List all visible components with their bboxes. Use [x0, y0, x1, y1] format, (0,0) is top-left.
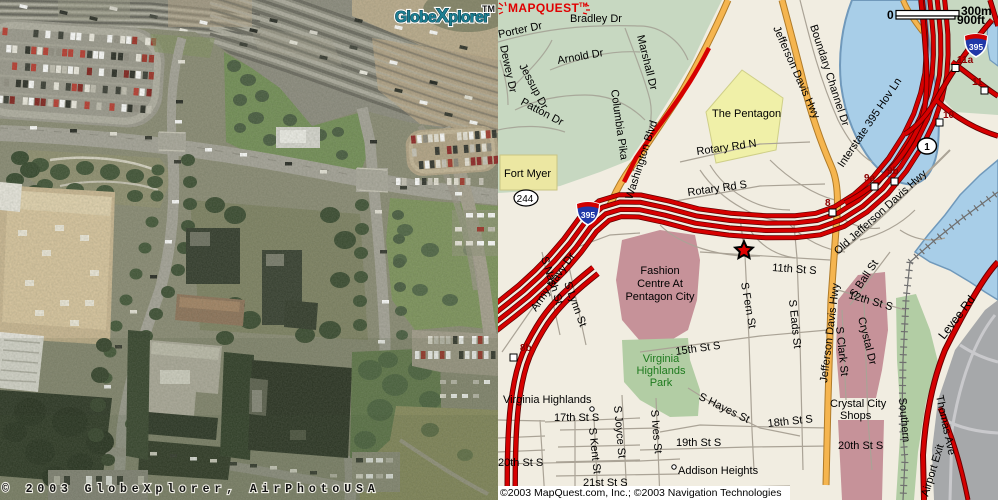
- svg-text:Fashion: Fashion: [640, 265, 679, 277]
- svg-text:MAPQUEST: MAPQUEST: [508, 1, 579, 15]
- svg-text:395: 395: [581, 210, 595, 220]
- svg-text:Crystal City: Crystal City: [830, 398, 887, 410]
- svg-text:Pentagon City: Pentagon City: [625, 291, 695, 303]
- svg-text:The Pentagon: The Pentagon: [712, 108, 781, 120]
- svg-text:Park: Park: [650, 377, 673, 389]
- svg-text:8b: 8b: [520, 343, 532, 354]
- svg-text:19th St S: 19th St S: [676, 437, 721, 449]
- svg-text:244: 244: [517, 194, 534, 205]
- svg-text:8: 8: [825, 198, 831, 209]
- svg-text:Highlands: Highlands: [637, 365, 686, 377]
- svg-text:© 2003 GlobeXplorer, AirPhotoU: © 2003 GlobeXplorer, AirPhotoUSA: [2, 483, 380, 496]
- svg-text:900ft: 900ft: [957, 13, 985, 27]
- svg-text:11: 11: [972, 77, 983, 88]
- svg-text:0: 0: [887, 8, 894, 22]
- svg-text:Fort Myer: Fort Myer: [504, 168, 551, 180]
- svg-text:GlobeXplorer: GlobeXplorer: [395, 5, 489, 27]
- svg-text:TM: TM: [482, 4, 495, 14]
- svg-text:10: 10: [943, 110, 955, 121]
- svg-text:Addison Heights: Addison Heights: [678, 465, 759, 477]
- svg-text:Shops: Shops: [840, 410, 872, 422]
- svg-text:9b: 9b: [887, 166, 899, 177]
- svg-text:11a: 11a: [957, 55, 974, 66]
- svg-text:Centre At: Centre At: [637, 278, 683, 290]
- svg-text:Virginia: Virginia: [643, 353, 680, 365]
- svg-text:1: 1: [924, 142, 930, 153]
- svg-text:395: 395: [969, 42, 983, 52]
- svg-text:17th St S: 17th St S: [554, 412, 599, 424]
- svg-text:©2003 MapQuest.com, Inc.; ©200: ©2003 MapQuest.com, Inc.; ©2003 Navigati…: [500, 487, 781, 499]
- svg-text:Virginia Highlands: Virginia Highlands: [503, 394, 592, 406]
- svg-text:20th St S: 20th St S: [498, 457, 543, 469]
- svg-text:20th St S: 20th St S: [838, 440, 883, 452]
- svg-text:TM: TM: [579, 3, 588, 9]
- svg-text:9a: 9a: [864, 173, 876, 184]
